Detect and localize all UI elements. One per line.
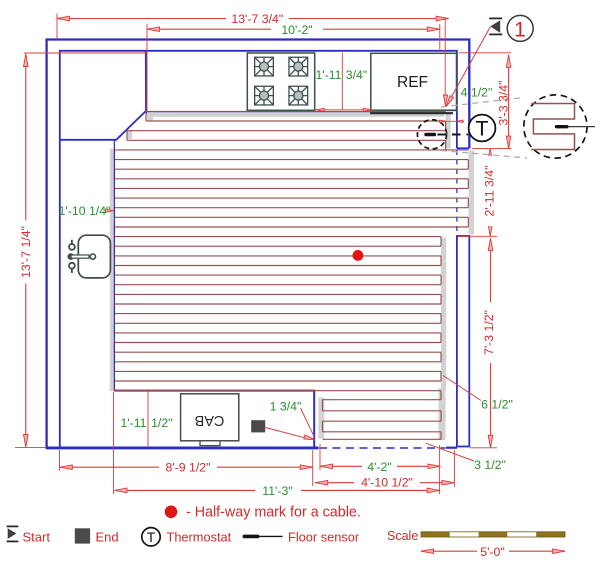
svg-text:End: End [96,529,119,544]
svg-text:7'-3 1/2": 7'-3 1/2" [482,310,496,355]
svg-text:4'-2": 4'-2" [367,460,392,474]
svg-text:- Half-way mark for a cable.: - Half-way mark for a cable. [186,504,361,520]
svg-text:1/2": 1/2" [151,416,172,430]
svg-text:Start: Start [23,529,51,544]
svg-text:11'-3": 11'-3" [262,484,292,498]
svg-text:T: T [475,117,488,141]
svg-text:T: T [147,529,156,545]
svg-text:3 1/2": 3 1/2" [474,458,506,472]
svg-text:Scale: Scale [387,529,418,543]
svg-text:REF: REF [397,74,428,91]
svg-text:1 3/4": 1 3/4" [270,400,302,414]
svg-text:Thermostat: Thermostat [167,529,232,544]
svg-text:5'-0": 5'-0" [480,545,505,559]
svg-text:13'-7 1/4": 13'-7 1/4" [19,226,33,278]
svg-text:2'-11 3/4": 2'-11 3/4" [483,166,497,217]
svg-text:8'-9 1/2": 8'-9 1/2" [166,461,211,475]
svg-text:1'-10 1/4": 1'-10 1/4" [59,204,111,218]
svg-text:1'-11: 1'-11 [120,416,146,430]
svg-text:Floor sensor: Floor sensor [288,529,360,544]
svg-text:3/4": 3/4" [346,68,367,82]
svg-text:10'-2": 10'-2" [281,23,312,37]
svg-text:1'-11: 1'-11 [315,68,341,82]
svg-text:1: 1 [514,18,526,41]
svg-text:3'-3 3/4": 3'-3 3/4" [497,81,511,126]
svg-text:6 1/2": 6 1/2" [481,398,513,412]
svg-text:4 1/2": 4 1/2" [461,86,493,100]
svg-text:CAB: CAB [195,412,225,428]
svg-text:4'-10 1/2": 4'-10 1/2" [361,475,413,489]
